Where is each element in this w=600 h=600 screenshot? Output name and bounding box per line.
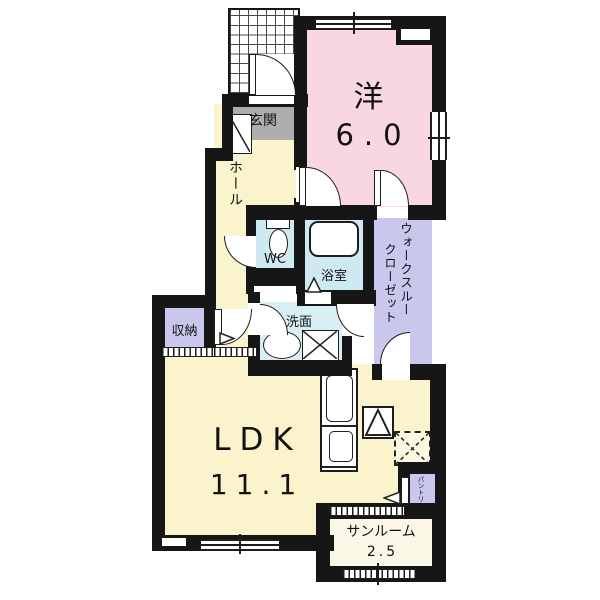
label-western-area: 6.0 xyxy=(303,118,434,152)
closet-door-leaf xyxy=(374,170,381,206)
label-western: 洋 xyxy=(303,72,434,116)
window-tick xyxy=(239,534,241,554)
wall-corner-notch xyxy=(401,29,430,40)
wall xyxy=(408,205,446,220)
wall xyxy=(246,205,377,220)
wall xyxy=(152,295,165,551)
label-hall: ホール xyxy=(225,160,245,208)
label-sunroom-area: 2.5 xyxy=(330,544,432,560)
window-sunroom-top xyxy=(330,506,404,516)
wall xyxy=(205,148,216,312)
laundry-space-x xyxy=(396,433,429,464)
storage-sliding-door xyxy=(162,347,214,357)
washbasin-icon xyxy=(263,331,301,359)
label-entrance: 玄関 xyxy=(230,110,296,130)
washing-machine-icon xyxy=(302,330,339,361)
label-storage: 収納 xyxy=(165,320,204,339)
closet-ldk-opening xyxy=(382,364,410,380)
window-tick xyxy=(353,12,355,34)
wall xyxy=(246,218,256,238)
bathtub-icon xyxy=(309,221,359,257)
label-washroom: 洗面 xyxy=(270,311,328,330)
ldk-door-arrow xyxy=(219,332,235,345)
window-tick xyxy=(377,563,379,585)
bath-door-opening xyxy=(305,292,331,304)
wall xyxy=(248,360,352,376)
refrigerator-triangle xyxy=(364,408,392,437)
label-pantry: パントリー xyxy=(415,476,425,510)
pantry-door-arrow xyxy=(383,491,401,505)
label-walk-through-closet-2: クローゼット xyxy=(380,243,399,324)
wc-door-opening xyxy=(254,286,296,300)
entrance-door-leaf xyxy=(249,54,256,95)
window-sunroom-bottom xyxy=(343,569,415,579)
hall-ldk-threshold xyxy=(214,347,256,357)
entrance-threshold xyxy=(249,96,299,104)
label-wc: WC xyxy=(256,252,294,267)
western-door-leaf xyxy=(299,167,306,206)
wall-notch xyxy=(162,538,186,546)
wall xyxy=(372,364,382,380)
refrigerator-icon xyxy=(362,406,394,439)
label-ldk: LDK xyxy=(168,422,338,458)
closet-passage-opening xyxy=(364,304,374,337)
wall xyxy=(342,336,352,376)
label-bath: 浴室 xyxy=(305,265,363,284)
kitchen-sink-icon xyxy=(326,375,353,422)
label-ldk-area: 11.1 xyxy=(168,468,338,501)
washing-machine-x xyxy=(303,331,337,359)
laundry-space-icon xyxy=(394,431,431,466)
floorplan: 洋 6.0 玄関 ホール WC 浴室 洗面 収納 ウォークスルー クローゼット … xyxy=(0,0,600,600)
label-sunroom: サンルーム xyxy=(330,521,432,541)
